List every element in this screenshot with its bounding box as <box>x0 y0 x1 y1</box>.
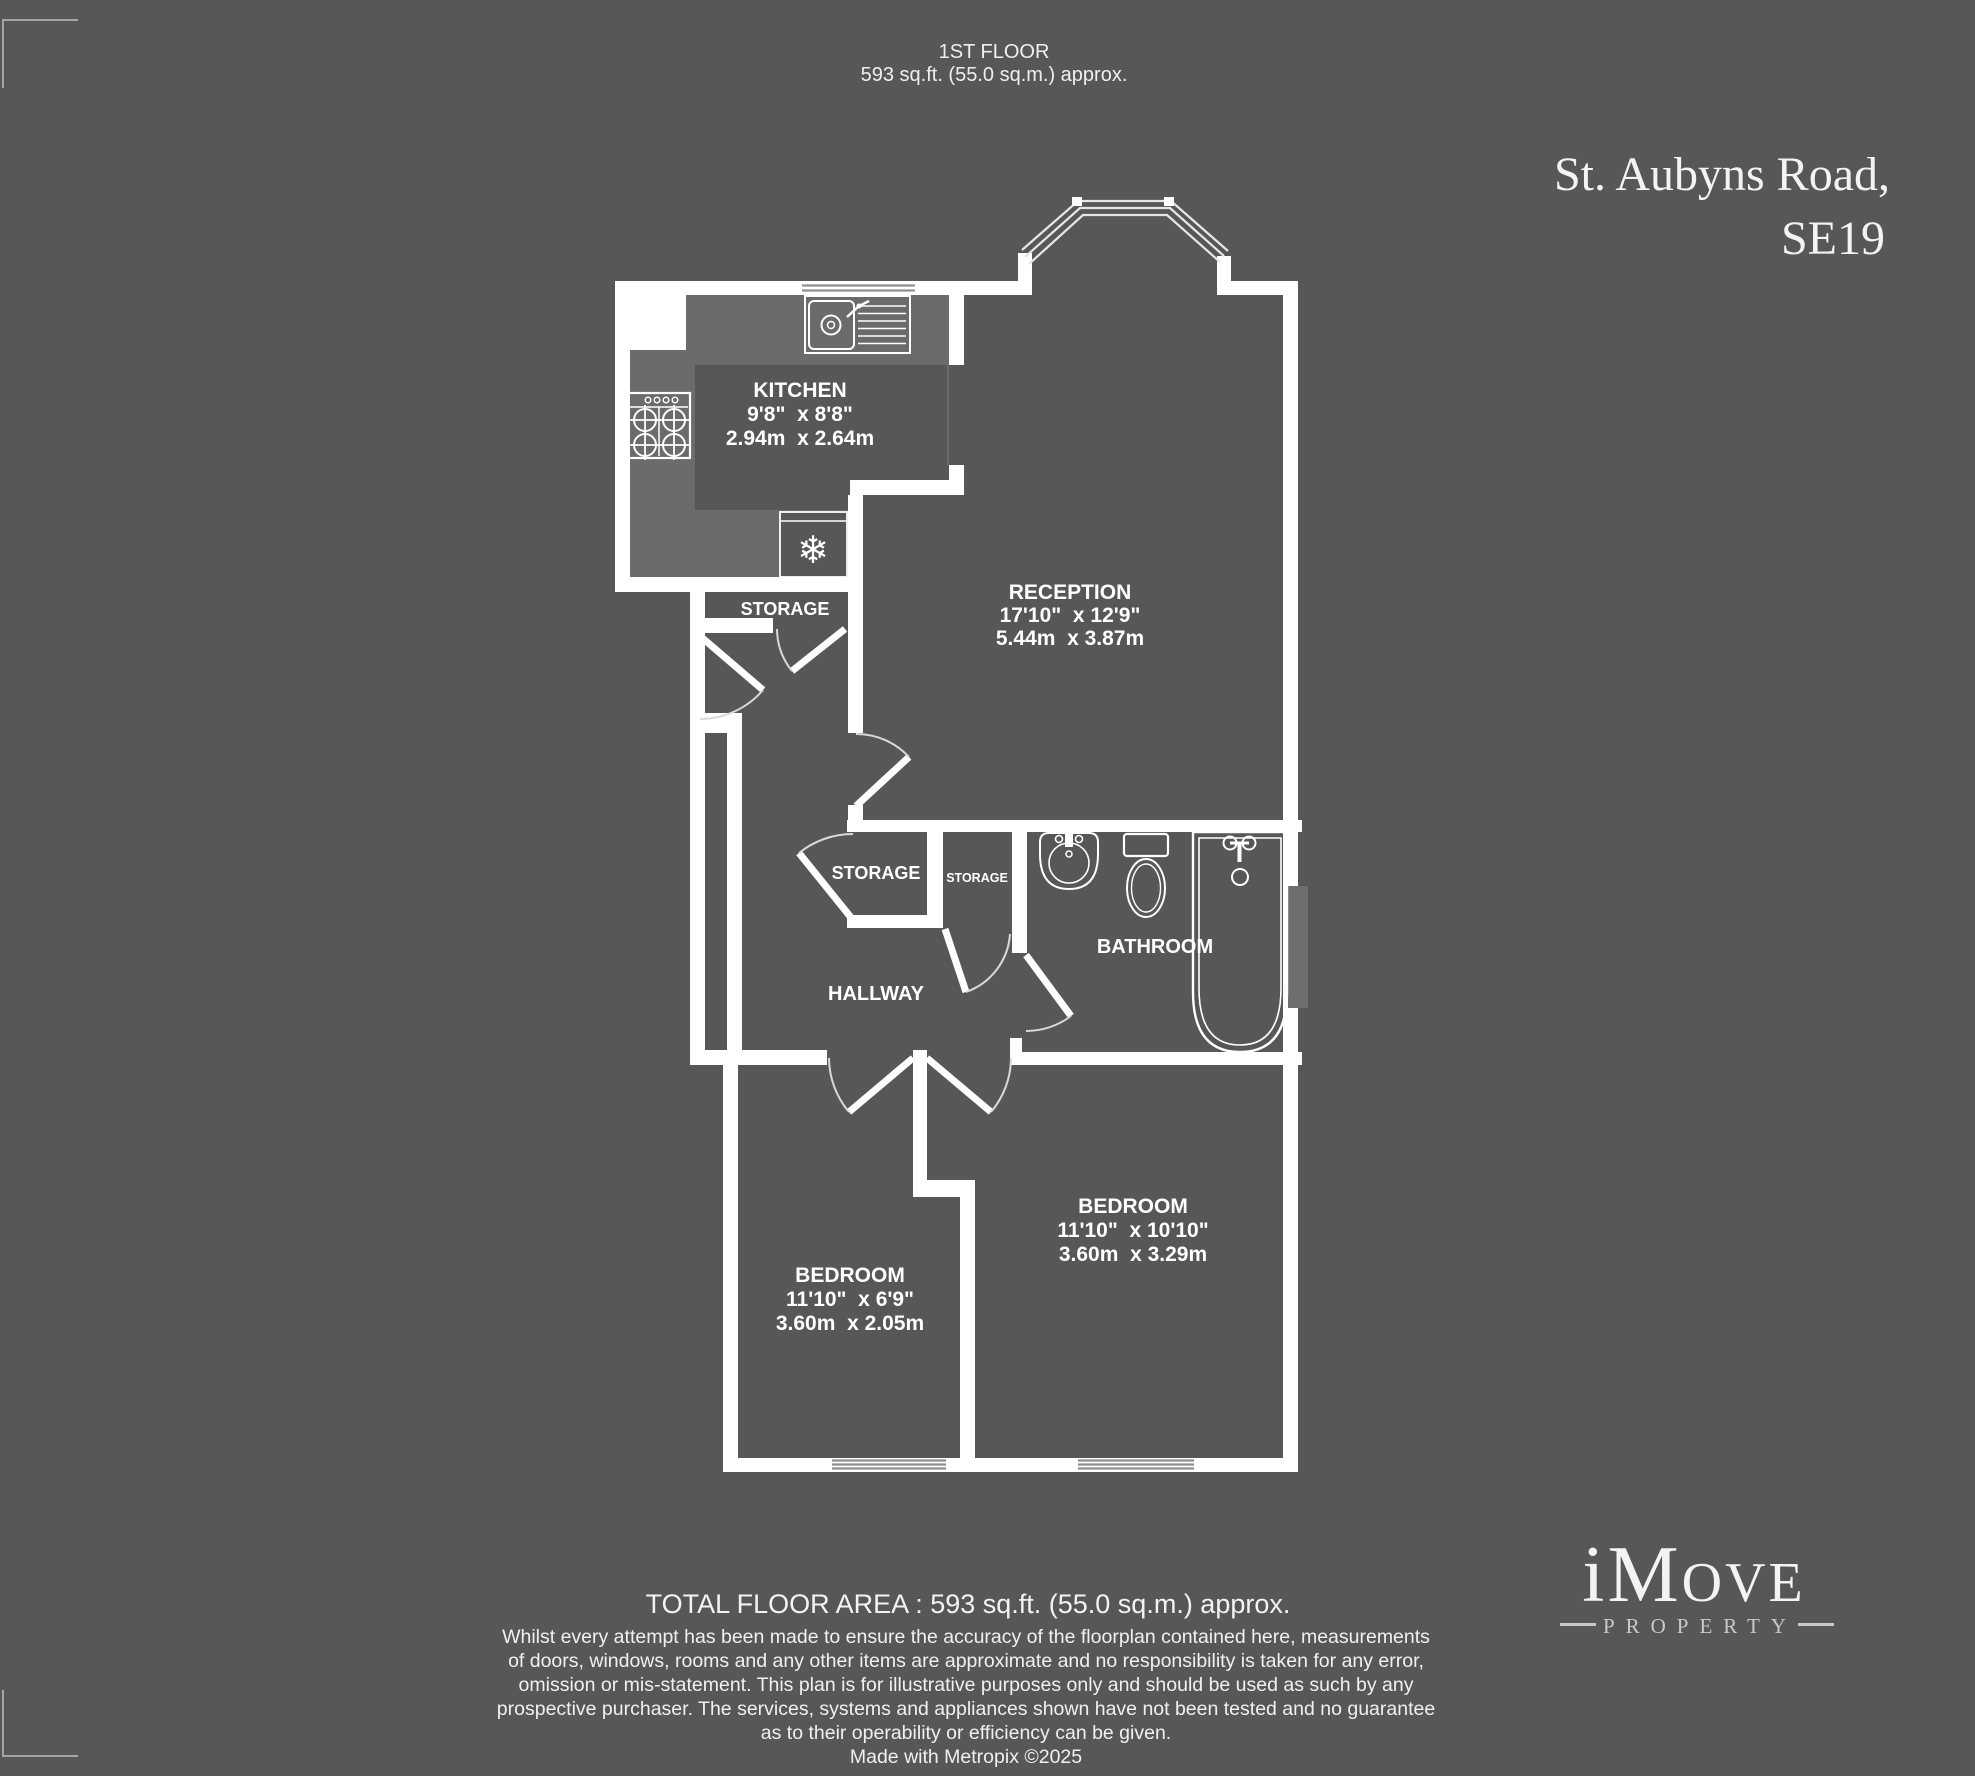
address-line-1: St. Aubyns Road, <box>1554 148 1890 201</box>
page-background <box>0 0 1975 1776</box>
wall-storage-left-bottom <box>847 915 933 928</box>
disclaimer-line-3: omission or mis-statement. This plan is … <box>519 1674 1414 1696</box>
wall-middle-horizontal <box>847 820 1302 832</box>
address-line-2: SE19 <box>1781 212 1885 265</box>
wall-bathroom-bottom <box>1022 1052 1302 1065</box>
bedroom-right-imperial: 11'10" x 10'10" <box>1057 1219 1208 1242</box>
logo-dash-right-icon <box>1798 1623 1834 1626</box>
wall-hallway-bottom <box>690 1050 827 1065</box>
made-with-credit: Made with Metropix ©2025 <box>850 1746 1082 1768</box>
fridge-icon: ❄ <box>780 512 847 577</box>
wall-storage-top-stub <box>690 618 773 633</box>
kitchen-imperial: 9'8" x 8'8" <box>747 403 853 426</box>
wall-bedroom-divider <box>960 1180 975 1472</box>
wall-left-inner <box>727 733 742 1065</box>
bedroom-left-label: BEDROOM 11'10" x 6'9" 3.60m x 2.05m <box>776 1264 924 1335</box>
wall-storage-divider <box>927 832 943 928</box>
wall-left-outer <box>690 577 705 1065</box>
storage-top-label: STORAGE <box>741 599 830 619</box>
disclaimer-line-2: of doors, windows, rooms and any other i… <box>508 1650 1424 1672</box>
logo-dash-left-icon <box>1560 1623 1596 1626</box>
wall-bottom <box>723 1458 1298 1472</box>
bedroom-left-metric: 3.60m x 2.05m <box>776 1312 924 1335</box>
floor-title: 1ST FLOOR <box>939 41 1050 63</box>
reception-imperial: 17'10" x 12'9" <box>1000 604 1141 627</box>
wall-bathroom-west <box>1012 832 1027 953</box>
bedroom-left-imperial: 11'10" x 6'9" <box>786 1288 914 1311</box>
wall-bedroom-left <box>723 1065 738 1472</box>
reception-metric: 5.44m x 3.87m <box>996 627 1144 650</box>
disclaimer-line-1: Whilst every attempt has been made to en… <box>502 1626 1430 1648</box>
reception-name: RECEPTION <box>1009 581 1132 604</box>
reception-label: RECEPTION 17'10" x 12'9" 5.44m x 3.87m <box>996 581 1144 650</box>
disclaimer-line-4: prospective purchaser. The services, sys… <box>497 1698 1435 1720</box>
bathroom-label: BATHROOM <box>1097 936 1213 958</box>
bedroom-right-name: BEDROOM <box>1078 1195 1188 1218</box>
wall-top <box>615 281 1032 295</box>
wall-kitchen-reception-upper <box>949 295 964 365</box>
kitchen-name: KITCHEN <box>753 379 846 402</box>
total-floor-area: TOTAL FLOOR AREA : 593 sq.ft. (55.0 sq.m… <box>646 1589 1291 1619</box>
wall-left-jog <box>690 713 742 733</box>
wall-right <box>1283 281 1298 1472</box>
wall-corridor-east <box>848 495 863 733</box>
bedroom-right-metric: 3.60m x 3.29m <box>1059 1243 1207 1266</box>
bedroom-right-label: BEDROOM 11'10" x 10'10" 3.60m x 3.29m <box>1057 1195 1208 1266</box>
disclaimer-line-5: as to their operability or efficiency ca… <box>761 1722 1171 1744</box>
storage-left-label: STORAGE <box>832 863 921 883</box>
storage-right-label: STORAGE <box>946 871 1008 885</box>
hallway-label: HALLWAY <box>828 983 925 1005</box>
wall-kitchen-reception-jog <box>850 480 964 495</box>
wall-kitchen-bottom <box>615 577 850 592</box>
floorplan-page: 1ST FLOOR 593 sq.ft. (55.0 sq.m.) approx… <box>0 0 1975 1776</box>
bedroom-left-name: BEDROOM <box>795 1264 905 1287</box>
snowflake-icon: ❄ <box>797 530 829 572</box>
wall-between-bedroom-doors <box>913 1050 927 1197</box>
kitchen-metric: 2.94m x 2.64m <box>726 427 874 450</box>
radiator-icon <box>1288 886 1308 1008</box>
kitchen-counter-icon <box>630 295 686 350</box>
floor-area-subtitle: 593 sq.ft. (55.0 sq.m.) approx. <box>861 64 1128 86</box>
imove-logo-tagline: PROPERTY <box>1603 1614 1797 1638</box>
bay-stub-left <box>1018 253 1032 295</box>
floorplan-canvas: 1ST FLOOR 593 sq.ft. (55.0 sq.m.) approx… <box>0 0 1975 1776</box>
